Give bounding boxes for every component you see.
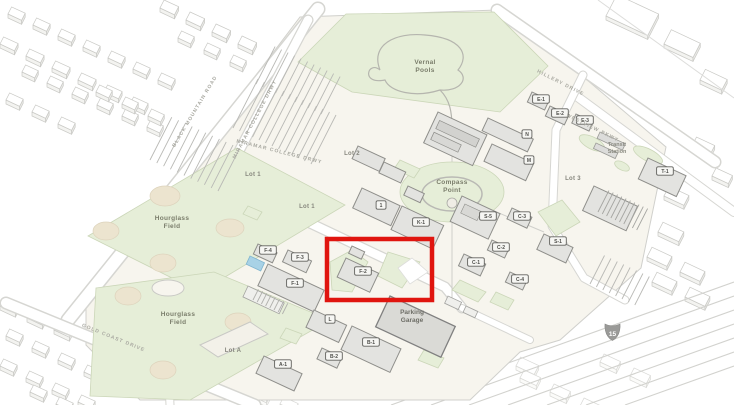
off-campus-building (664, 30, 700, 62)
building-chip-C-3: C-3 (514, 212, 531, 220)
off-campus-building (52, 61, 70, 79)
building-chip-F-3: F-3 (292, 253, 309, 261)
field-plaza (152, 280, 184, 296)
svg-text:C-2: C-2 (497, 245, 505, 251)
off-campus-building (230, 55, 246, 72)
off-campus-building (26, 49, 44, 67)
building-chip-N: N (522, 130, 532, 138)
off-campus-building (520, 370, 540, 390)
shield-number: 15 (609, 331, 617, 338)
label-parking-garage: ParkingGarage (400, 309, 424, 324)
off-campus-building (58, 117, 75, 134)
off-campus-building (6, 93, 23, 110)
off-campus-building (83, 40, 100, 57)
building-chip-F-4: F-4 (260, 246, 277, 254)
building-chip-S-5: S-5 (480, 212, 497, 220)
label-lot-1-west: Lot 1 (245, 172, 261, 178)
off-campus-building (652, 272, 677, 295)
building-chip-L: L (325, 315, 335, 323)
off-campus-building (32, 341, 49, 358)
off-campus-building (186, 12, 205, 31)
off-campus-building (160, 0, 179, 19)
off-campus-building (212, 24, 231, 43)
off-campus-building (58, 29, 75, 46)
off-campus-building (58, 353, 75, 370)
label-lot-a: Lot A (225, 348, 242, 354)
off-campus-road (598, 0, 734, 98)
campus-map: 1K-1S-5C-3C-2C-1C-4S-1NME-1E-2E-3T-1F-2F… (0, 0, 734, 405)
svg-text:1: 1 (380, 203, 383, 209)
off-campus-building (108, 51, 125, 68)
off-campus-building (680, 262, 705, 285)
svg-text:N: N (525, 132, 529, 138)
svg-text:T-1: T-1 (661, 169, 668, 175)
off-campus-building (0, 359, 17, 376)
svg-text:S-5: S-5 (484, 214, 492, 220)
building-chip-F-2: F-2 (355, 267, 372, 275)
off-campus-building (22, 65, 38, 82)
off-campus-building (32, 105, 49, 122)
svg-text:F-3: F-3 (296, 255, 304, 261)
off-campus-building (630, 368, 650, 388)
off-campus-building (238, 36, 257, 55)
off-campus-building (6, 329, 23, 346)
building-chip-S-1: S-1 (550, 237, 567, 245)
label-lot-2: Lot 2 (344, 151, 360, 157)
building-chip-B-1: B-1 (363, 338, 380, 346)
svg-text:S-1: S-1 (554, 239, 562, 245)
label-vernal-pools: VernalPools (414, 59, 435, 74)
building-chip-B-2: B-2 (326, 352, 343, 360)
off-campus-building (658, 222, 684, 246)
svg-text:C-3: C-3 (518, 214, 526, 220)
building-chip-C-1: C-1 (468, 258, 485, 266)
svg-text:F-2: F-2 (359, 269, 367, 275)
svg-text:M: M (527, 158, 531, 164)
svg-text:B-2: B-2 (330, 354, 338, 360)
off-campus-building (47, 76, 63, 93)
off-campus-building (133, 62, 150, 79)
off-campus-building (204, 43, 220, 60)
off-campus-building (647, 247, 672, 270)
off-campus-building (30, 385, 47, 402)
building-chip-A-1: A-1 (275, 360, 292, 368)
building-chip-M: M (524, 156, 534, 164)
building-chip-E-1: E-1 (533, 95, 550, 103)
svg-text:F-4: F-4 (264, 248, 272, 254)
building-chip-K-1: K-1 (413, 218, 430, 226)
building-chip-C-4: C-4 (512, 275, 529, 283)
svg-text:E-2: E-2 (556, 111, 564, 117)
label-lot-3: Lot 3 (565, 176, 581, 182)
off-campus-building (0, 37, 18, 55)
off-campus-building (178, 31, 194, 48)
svg-text:E-1: E-1 (537, 97, 545, 103)
off-campus-building (72, 87, 88, 104)
label-lot-1-center: Lot 1 (299, 204, 315, 210)
svg-text:K-1: K-1 (417, 220, 425, 226)
svg-text:A-1: A-1 (279, 362, 287, 368)
off-campus-building (78, 73, 96, 91)
off-campus-building (8, 7, 25, 24)
svg-text:B-1: B-1 (367, 340, 375, 346)
svg-text:F-1: F-1 (291, 281, 299, 287)
label-transit-station: TransitStation (608, 142, 627, 155)
off-campus-building (712, 168, 732, 188)
svg-text:C-1: C-1 (472, 260, 480, 266)
building-chip-C-2: C-2 (493, 243, 510, 251)
svg-text:C-4: C-4 (516, 277, 524, 283)
building-chip-T-1: T-1 (657, 167, 674, 175)
off-campus-building (158, 73, 175, 90)
building-chip-1: 1 (376, 201, 386, 209)
off-campus-building (606, 0, 659, 40)
building-chip-F-1: F-1 (287, 279, 304, 287)
svg-text:L: L (328, 317, 331, 323)
off-campus-building (33, 18, 50, 35)
